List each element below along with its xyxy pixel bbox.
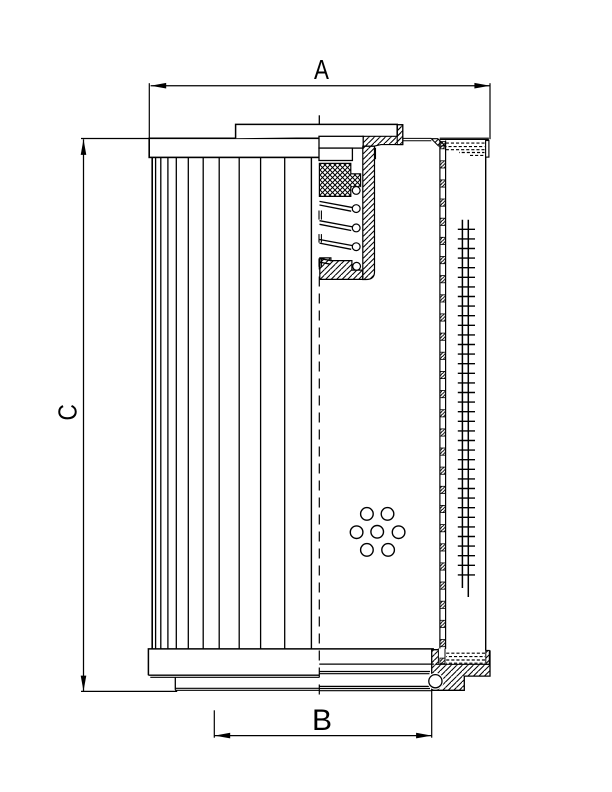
svg-text:C: C — [54, 404, 83, 420]
svg-text:A: A — [314, 55, 329, 86]
svg-text:B: B — [312, 704, 332, 737]
